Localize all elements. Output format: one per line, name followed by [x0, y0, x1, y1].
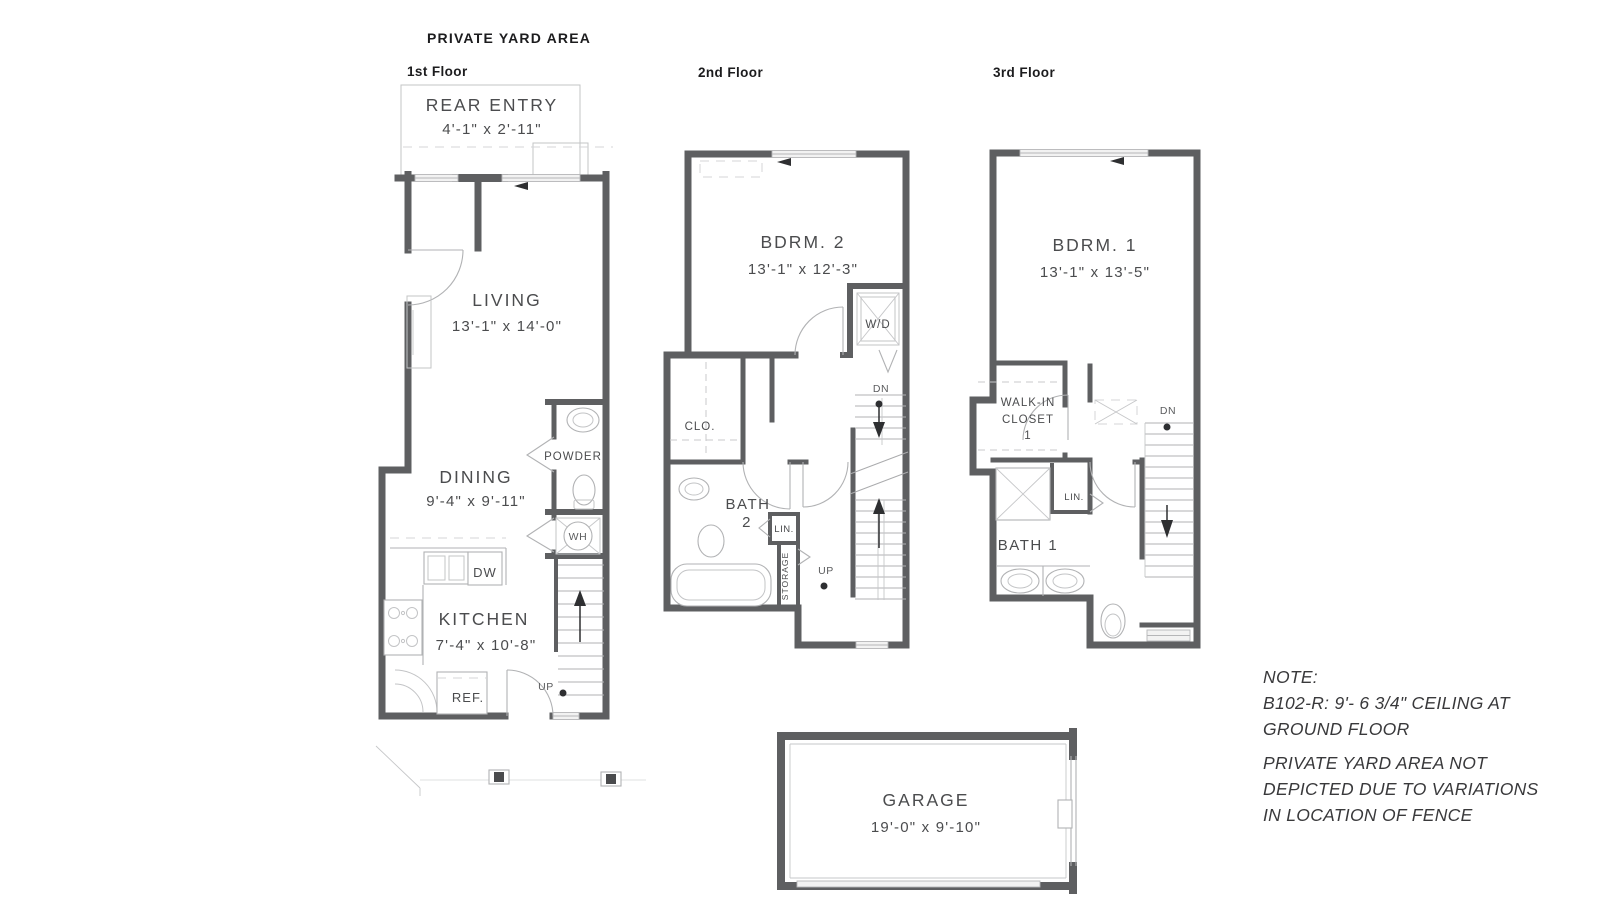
kitchen-dims: 7'-4" x 10'-8" [436, 637, 537, 654]
floor3-lin-label: LIN. [1064, 492, 1083, 503]
rear-entry-dims: 4'-1" x 2'-11" [442, 121, 542, 138]
up-marker-dot [821, 583, 828, 590]
walkin-line1: WALK-IN [1001, 397, 1056, 409]
floorplan-drawing: PRIVATE YARD AREA 1st Floor REAR ENTRY 4… [0, 0, 1600, 904]
floor-plan-3rd: 3rd Floor BDRM. 1 13'-1" x 13'-5" WALK-I… [973, 65, 1197, 645]
floorplan-canvas: PRIVATE YARD AREA 1st Floor REAR ENTRY 4… [0, 0, 1600, 904]
note-line: DEPICTED DUE TO VARIATIONS [1263, 779, 1539, 799]
fence-markers [376, 746, 646, 796]
window-swing-arrow-icon [514, 182, 528, 190]
note-line: B102-R: 9'- 6 3/4" CEILING AT [1263, 693, 1511, 713]
floor2-dn-label: DN [873, 383, 889, 395]
down-arrow-icon [873, 422, 885, 438]
wd-label: W/D [865, 319, 890, 331]
note-line: GROUND FLOOR [1263, 719, 1410, 739]
floor1-label: 1st Floor [407, 64, 468, 79]
dw-label: DW [473, 565, 497, 580]
garage-door-handle [1058, 800, 1072, 828]
kitchen-name: KITCHEN [439, 609, 530, 629]
garage-walls [781, 732, 1073, 890]
powder-sink [567, 408, 599, 432]
bdrm2-dims: 13'-1" x 12'-3" [748, 261, 858, 278]
floor2-interior-walls [667, 355, 853, 595]
bath1-sink [1001, 569, 1039, 593]
dining-name: DINING [439, 467, 512, 487]
note-block: NOTE: B102-R: 9'- 6 3/4" CEILING AT GROU… [1263, 667, 1539, 825]
stair-break-line [850, 452, 908, 494]
floor3-stairs [1145, 423, 1193, 577]
floor-plan-2nd: 2nd Floor BDRM. 2 13'-1" x 12'-3" W/D CL… [667, 65, 908, 649]
dn-marker-dot [1164, 424, 1171, 431]
floor2-label: 2nd Floor [698, 65, 763, 80]
powder-label: POWDER [544, 451, 602, 463]
bath2-sink [679, 478, 709, 500]
kitchen-sink [424, 552, 468, 584]
dn-marker-dot [876, 401, 883, 408]
bath1-toilet [1101, 604, 1125, 638]
note-line: PRIVATE YARD AREA NOT [1263, 753, 1488, 773]
ref-label: REF. [452, 690, 484, 705]
living-name: LIVING [472, 290, 541, 310]
floor-plan-1st: PRIVATE YARD AREA 1st Floor REAR ENTRY 4… [376, 30, 646, 796]
bath2-name: BATH [726, 496, 771, 513]
floor3-dn-label: DN [1160, 405, 1176, 417]
window-swing-arrow-icon [777, 158, 791, 166]
floor2-lin-label: LIN. [774, 524, 793, 535]
garage-name: GARAGE [883, 790, 970, 810]
stove [384, 600, 422, 655]
bath1-sink [1046, 569, 1084, 593]
bdrm2-name: BDRM. 2 [761, 232, 846, 252]
wh-label: WH [569, 531, 588, 543]
walkin-line3: 1 [1024, 430, 1031, 442]
note-line: IN LOCATION OF FENCE [1263, 805, 1473, 825]
bath2-number: 2 [742, 514, 752, 531]
bath1-label: BATH 1 [998, 537, 1058, 554]
floor3-label: 3rd Floor [993, 65, 1055, 80]
floor1-stairs [558, 565, 604, 697]
yard-area-title: PRIVATE YARD AREA [427, 30, 591, 46]
living-dims: 13'-1" x 14'-0" [452, 318, 562, 335]
storage-label: STORAGE [780, 552, 790, 600]
floor3-windows [1020, 150, 1190, 642]
bath2-toilet [698, 525, 724, 557]
up-marker-dot [560, 690, 567, 697]
floor2-doors [743, 307, 897, 565]
down-arrow-icon [1161, 520, 1173, 538]
floor3-lin-walls [1052, 465, 1090, 512]
walkin-line2: CLOSET [1002, 414, 1054, 426]
window-swing-arrow-icon [1110, 157, 1124, 165]
wd-bifold-door [879, 350, 897, 372]
garage-door [797, 881, 1040, 887]
garage-dims: 19'-0" x 9'-10" [871, 819, 981, 836]
floor1-up-label: UP [538, 681, 554, 693]
dining-dims: 9'-4" x 9'-11" [426, 493, 526, 510]
note-heading: NOTE: [1263, 667, 1318, 687]
bdrm1-name: BDRM. 1 [1053, 235, 1138, 255]
floor2-closet-symbols [670, 161, 762, 455]
up-arrow-icon [574, 590, 586, 606]
bdrm1-dims: 13'-1" x 13'-5" [1040, 264, 1150, 281]
floor2-up-label: UP [818, 565, 834, 577]
garage-plan: GARAGE 19'-0" x 9'-10" [781, 732, 1076, 890]
clo-label: CLO. [685, 421, 716, 433]
rear-entry-name: REAR ENTRY [426, 95, 558, 115]
corner-cabinet [395, 670, 437, 712]
